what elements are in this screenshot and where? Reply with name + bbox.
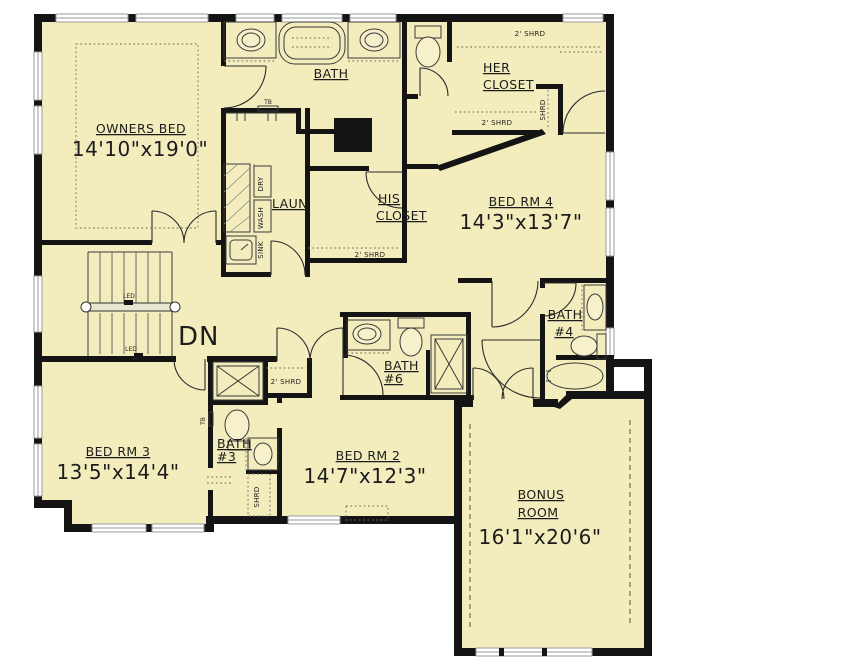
window xyxy=(288,516,340,524)
window xyxy=(34,444,42,496)
his-closet-line2: CLOSET xyxy=(376,208,427,223)
washer-label: WASH xyxy=(257,207,265,229)
window xyxy=(476,648,592,656)
dryer-label: DRY xyxy=(257,176,265,191)
second-floor-plan: OWNERS BED 14'10"x19'0" BATH HER CLOSET … xyxy=(0,0,850,668)
window xyxy=(606,152,614,200)
window xyxy=(606,208,614,256)
bed-rm4-name: BED RM 4 xyxy=(489,194,554,209)
window xyxy=(152,524,204,532)
window xyxy=(136,14,208,22)
window xyxy=(236,14,274,22)
window xyxy=(34,52,42,100)
his-closet-line1: HIS xyxy=(378,191,400,206)
open-to-below xyxy=(614,367,644,391)
ledge-marker xyxy=(134,353,143,358)
her-closet-line2: CLOSET xyxy=(483,77,534,92)
window xyxy=(56,14,128,22)
shelf-rod-label: 2' SHRD xyxy=(271,378,302,386)
her-closet-line1: HER xyxy=(483,60,510,75)
owners-bed-name: OWNERS BED xyxy=(96,121,186,136)
sink-label: SINK xyxy=(257,241,265,259)
shelf-rod-label: SHRD xyxy=(539,99,547,120)
towel-bar-label: TB xyxy=(200,417,207,426)
window xyxy=(34,276,42,332)
bath4-number: #4 xyxy=(554,324,573,339)
window xyxy=(34,106,42,154)
towel-bar-label: TB xyxy=(263,99,272,106)
ledge-label: LED xyxy=(125,346,137,353)
bath-label: BATH xyxy=(314,66,349,81)
window xyxy=(92,524,146,532)
ledge-label: LED xyxy=(123,293,135,300)
ledge-marker xyxy=(124,300,133,305)
bath3-number: #3 xyxy=(217,449,236,464)
owners-bed-dims: 14'10"x19'0" xyxy=(72,137,208,161)
bed-rm3-name: BED RM 3 xyxy=(86,444,151,459)
bonus-dims: 16'1"x20'6" xyxy=(478,525,601,549)
window xyxy=(606,328,614,356)
bed-rm3-dims: 13'5"x14'4" xyxy=(56,460,179,484)
stairs-dn-label: DN xyxy=(178,322,219,352)
shelf-rod-label: 2' SHRD xyxy=(355,251,386,259)
bed-rm2-name: BED RM 2 xyxy=(336,448,401,463)
window xyxy=(563,14,603,22)
laundry-label: LAUN xyxy=(272,196,308,211)
bath4-name: BATH xyxy=(548,307,583,322)
bed-rm2-dims: 14'7"x12'3" xyxy=(303,464,426,488)
bed-rm4-dims: 14'3"x13'7" xyxy=(459,210,582,234)
bonus-line2: ROOM xyxy=(518,505,559,520)
bath6-number: #6 xyxy=(384,371,403,386)
window xyxy=(350,14,396,22)
shelf-rod-label: SHRD xyxy=(253,486,261,507)
shelf-rod-label: 2' SHRD xyxy=(515,30,546,38)
floor-plan-page: OWNERS BED 14'10"x19'0" BATH HER CLOSET … xyxy=(0,0,850,668)
bonus-line1: BONUS xyxy=(518,487,565,502)
shelf-rod-label: 2' SHRD xyxy=(482,119,513,127)
window xyxy=(282,14,342,22)
window xyxy=(34,386,42,438)
